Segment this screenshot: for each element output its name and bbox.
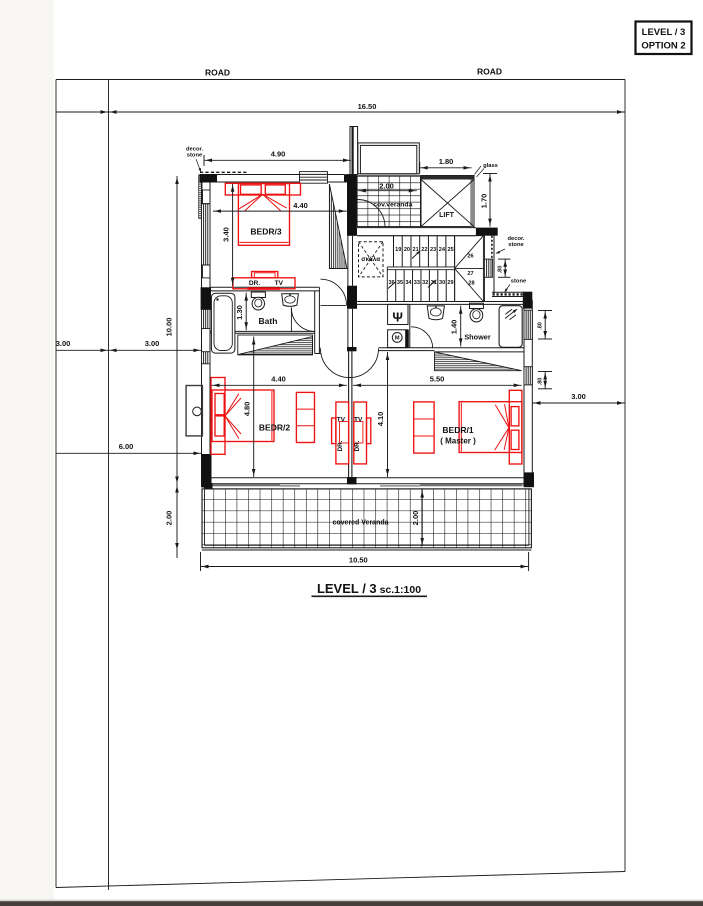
- svg-text:.80: .80: [537, 322, 543, 330]
- svg-text:4.90: 4.90: [271, 150, 286, 159]
- svg-text:TV: TV: [337, 416, 346, 423]
- svg-text:3.40: 3.40: [221, 227, 230, 242]
- svg-text:.80: .80: [537, 378, 543, 386]
- svg-text:( Master ): ( Master ): [440, 437, 476, 446]
- svg-text:.80: .80: [498, 266, 504, 274]
- svg-text:33: 33: [414, 280, 420, 286]
- svg-text:DR.: DR.: [337, 440, 344, 451]
- svg-text:16.50: 16.50: [358, 102, 377, 111]
- svg-text:glass: glass: [483, 163, 498, 169]
- svg-text:22: 22: [421, 247, 427, 253]
- svg-text:10.50: 10.50: [349, 556, 368, 565]
- svg-text:4.80: 4.80: [242, 402, 251, 417]
- svg-text:32: 32: [422, 280, 428, 286]
- svg-text:28: 28: [468, 281, 474, 287]
- svg-text:LEVEL / 3: LEVEL / 3: [642, 27, 686, 38]
- svg-text:24: 24: [439, 247, 446, 253]
- svg-text:4.10: 4.10: [376, 412, 385, 427]
- svg-text:OPTION 2: OPTION 2: [641, 41, 685, 52]
- svg-text:ROAD: ROAD: [205, 68, 230, 78]
- svg-text:35: 35: [397, 280, 403, 286]
- svg-text:LIFT: LIFT: [439, 212, 454, 219]
- svg-text:TV: TV: [354, 416, 363, 423]
- svg-text:26: 26: [467, 254, 473, 260]
- svg-text:34: 34: [405, 280, 412, 286]
- svg-text:1.70: 1.70: [479, 194, 488, 209]
- svg-text:20: 20: [404, 247, 410, 253]
- svg-text:25: 25: [447, 247, 453, 253]
- svg-text:30: 30: [439, 280, 445, 286]
- svg-text:stone: stone: [511, 279, 527, 285]
- svg-text:1.80: 1.80: [439, 157, 454, 166]
- svg-text:10.00: 10.00: [165, 318, 174, 337]
- svg-text:Shower: Shower: [464, 333, 491, 342]
- svg-text:19: 19: [395, 247, 401, 253]
- svg-text:29: 29: [447, 280, 453, 286]
- svg-text:2.00: 2.00: [379, 182, 394, 191]
- svg-text:M: M: [395, 336, 400, 342]
- svg-text:TV: TV: [275, 280, 284, 287]
- svg-text:1.30: 1.30: [235, 305, 244, 320]
- svg-text:σκάλα: σκάλα: [361, 255, 380, 263]
- svg-text:3.00: 3.00: [571, 392, 586, 401]
- svg-text:6.00: 6.00: [119, 442, 134, 451]
- svg-text:BEDR/2: BEDR/2: [259, 422, 290, 432]
- svg-text:4.40: 4.40: [293, 201, 308, 210]
- svg-text:BEDR/1: BEDR/1: [442, 425, 473, 435]
- svg-text:5.50: 5.50: [430, 375, 445, 384]
- svg-text:DR.: DR.: [354, 440, 361, 451]
- svg-text:Ψ: Ψ: [392, 309, 403, 324]
- svg-text:stone: stone: [187, 153, 203, 159]
- svg-text:3.00: 3.00: [56, 339, 71, 348]
- svg-text:stone: stone: [508, 242, 524, 248]
- svg-text:2.00: 2.00: [165, 511, 174, 526]
- svg-text:3.00: 3.00: [145, 339, 160, 348]
- svg-text:4.40: 4.40: [271, 375, 286, 384]
- svg-text:LEVEL / 3 sc.1:100: LEVEL / 3 sc.1:100: [317, 581, 421, 596]
- svg-text:Bath: Bath: [259, 316, 278, 326]
- svg-text:cov.veranda: cov.veranda: [373, 201, 412, 208]
- svg-text:27: 27: [467, 271, 473, 277]
- svg-text:covered Veranda: covered Veranda: [332, 520, 388, 527]
- svg-text:23: 23: [430, 247, 436, 253]
- svg-text:2.00: 2.00: [411, 511, 420, 526]
- svg-text:ROAD: ROAD: [477, 67, 502, 77]
- svg-text:DR.: DR.: [249, 280, 261, 287]
- svg-text:BEDR/3: BEDR/3: [250, 226, 281, 236]
- svg-text:1.40: 1.40: [449, 320, 458, 335]
